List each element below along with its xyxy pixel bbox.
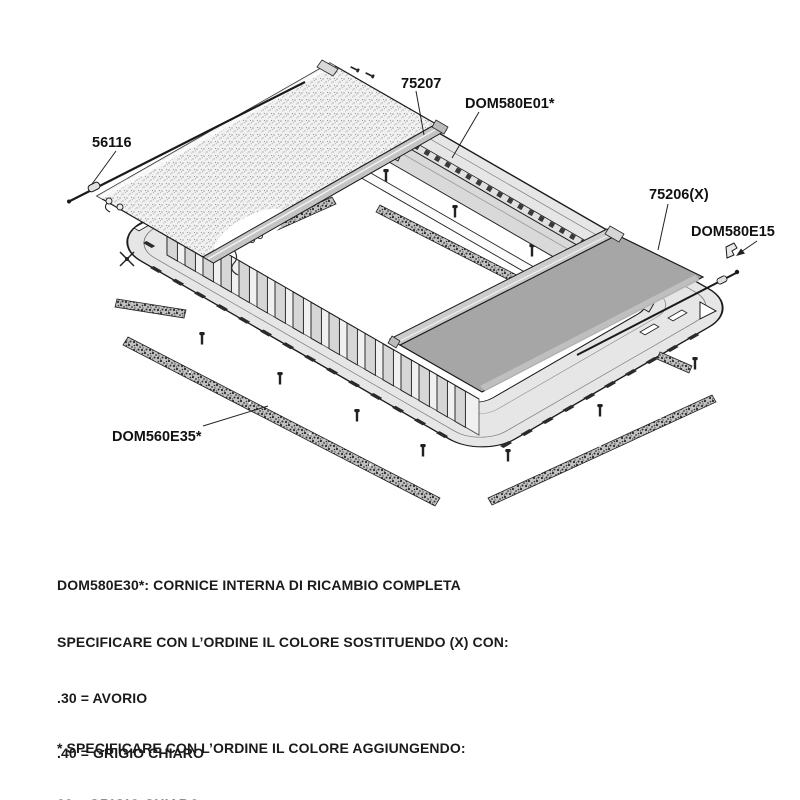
label-75206: 75206(X)	[649, 187, 709, 203]
left-corner-latch	[120, 252, 134, 266]
label-75207: 75207	[401, 76, 441, 92]
note-substitute-heading: SPECIFICARE CON L’ORDINE IL COLORE SOSTI…	[57, 633, 509, 652]
note-title: DOM580E30*: CORNICE INTERNA DI RICAMBIO …	[57, 576, 461, 595]
parts-diagram-page: 56116 75207 DOM580E01* 75206(X) DOM580E1…	[0, 0, 800, 800]
label-dom560e35: DOM560E35*	[112, 429, 202, 445]
exploded-view-drawing: 56116 75207 DOM580E01* 75206(X) DOM580E1…	[0, 0, 800, 530]
note-append-heading: * SPECIFICARE CON L’ORDINE IL COLORE AGG…	[57, 739, 466, 758]
label-56116: 56116	[92, 135, 132, 151]
label-dom580e15: DOM580E15	[691, 224, 775, 240]
note-append-block: * SPECIFICARE CON L’ORDINE IL COLORE AGG…	[57, 702, 466, 800]
color-option: 09 = GRIGIO CHIARO	[57, 795, 466, 800]
strip-left-end	[115, 299, 186, 318]
strip-right-end	[657, 352, 692, 373]
clip-dom580e15	[726, 243, 737, 258]
label-dom580e01: DOM580E01*	[465, 96, 555, 112]
